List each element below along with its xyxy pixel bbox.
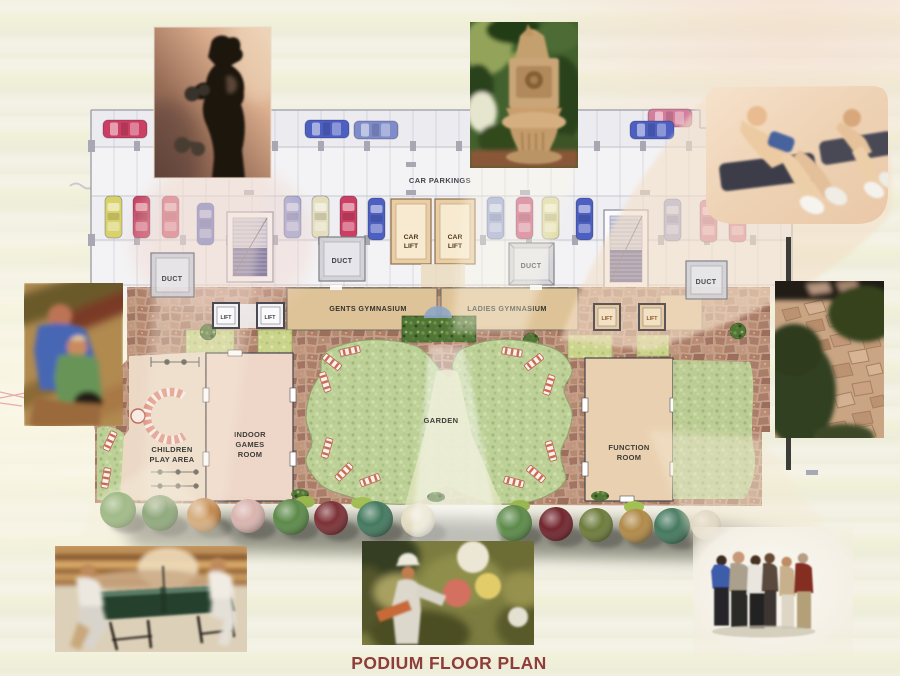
svg-text:DUCT: DUCT bbox=[696, 279, 717, 286]
svg-text:GAMES: GAMES bbox=[235, 440, 264, 449]
svg-text:FUNCTION: FUNCTION bbox=[608, 443, 649, 452]
svg-text:CAR PARKINGS: CAR PARKINGS bbox=[409, 176, 471, 185]
svg-text:PODIUM FLOOR PLAN: PODIUM FLOOR PLAN bbox=[351, 653, 546, 673]
svg-text:LIFT: LIFT bbox=[602, 316, 614, 322]
svg-text:CHILDREN: CHILDREN bbox=[151, 445, 192, 454]
svg-text:INDOOR: INDOOR bbox=[234, 430, 266, 439]
svg-text:DUCT: DUCT bbox=[332, 258, 353, 265]
svg-text:GARDEN: GARDEN bbox=[424, 416, 459, 425]
svg-text:CAR: CAR bbox=[448, 234, 463, 241]
svg-text:ROOM: ROOM bbox=[617, 453, 642, 462]
svg-text:ROOM: ROOM bbox=[238, 450, 263, 459]
svg-text:LIFT: LIFT bbox=[404, 243, 419, 250]
svg-text:PLAY AREA: PLAY AREA bbox=[150, 455, 195, 464]
svg-text:LIFT: LIFT bbox=[647, 316, 659, 322]
svg-text:DUCT: DUCT bbox=[162, 276, 183, 283]
svg-text:CAR: CAR bbox=[404, 234, 419, 241]
svg-text:GENTS GYMNASIUM: GENTS GYMNASIUM bbox=[329, 304, 406, 313]
svg-text:LIFT: LIFT bbox=[221, 315, 233, 321]
svg-text:LIFT: LIFT bbox=[265, 315, 277, 321]
